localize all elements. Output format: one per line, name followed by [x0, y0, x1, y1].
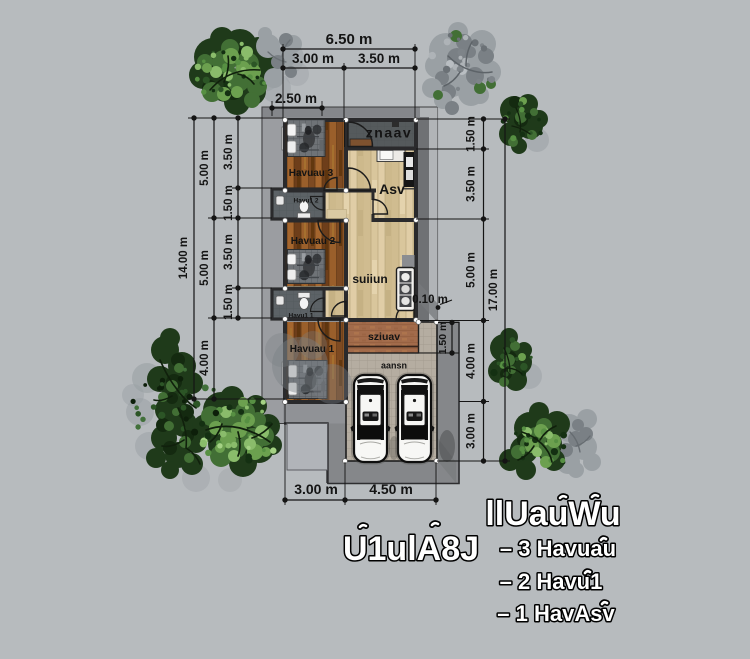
svg-text:Havuau 1: Havuau 1 — [290, 344, 335, 355]
svg-text:3.50 m: 3.50 m — [223, 234, 235, 270]
svg-text:3.00 m: 3.00 m — [466, 413, 478, 449]
svg-text:2.50 m: 2.50 m — [275, 91, 317, 106]
svg-text:Havu1 1: Havu1 1 — [289, 313, 314, 320]
svg-text:aansn: aansn — [381, 361, 407, 371]
svg-text:U1ulA8J: U1ulA8J — [343, 530, 479, 568]
svg-text:4.50 m: 4.50 m — [369, 481, 413, 497]
svg-text:1.50 m: 1.50 m — [223, 185, 235, 221]
svg-text:Havu1 2: Havu1 2 — [294, 198, 319, 205]
svg-text:1.50 m: 1.50 m — [437, 322, 449, 355]
svg-text:– 1 HavAsv: – 1 HavAsv — [497, 601, 615, 626]
svg-text:3.00 m: 3.00 m — [292, 51, 334, 66]
svg-text:sziuav: sziuav — [368, 331, 400, 343]
svg-text:1.50 m: 1.50 m — [466, 116, 478, 152]
svg-text:0.10 m: 0.10 m — [412, 294, 448, 306]
svg-text:5.00 m: 5.00 m — [199, 250, 211, 286]
svg-text:3.00 m: 3.00 m — [294, 481, 338, 497]
svg-text:5.00 m: 5.00 m — [199, 150, 211, 186]
svg-text:3.50 m: 3.50 m — [466, 166, 478, 202]
svg-text:4.00 m: 4.00 m — [199, 340, 211, 376]
svg-text:1.50 m: 1.50 m — [223, 284, 235, 320]
svg-text:6.50 m: 6.50 m — [326, 31, 373, 48]
svg-text:llUauWu: llUauWu — [485, 495, 620, 533]
svg-text:Havuau 3: Havuau 3 — [289, 168, 334, 179]
svg-text:suiiun: suiiun — [352, 272, 387, 286]
svg-text:4.00 m: 4.00 m — [466, 343, 478, 379]
svg-text:Havuau 2: Havuau 2 — [291, 236, 336, 247]
svg-text:14.00 m: 14.00 m — [178, 237, 190, 279]
svg-text:17.00 m: 17.00 m — [488, 269, 500, 311]
svg-text:Asv: Asv — [379, 181, 405, 197]
svg-text:3.50 m: 3.50 m — [358, 51, 400, 66]
svg-text:3.50 m: 3.50 m — [223, 134, 235, 170]
svg-text:znaav: znaav — [366, 125, 412, 141]
svg-text:5.00 m: 5.00 m — [466, 252, 478, 288]
